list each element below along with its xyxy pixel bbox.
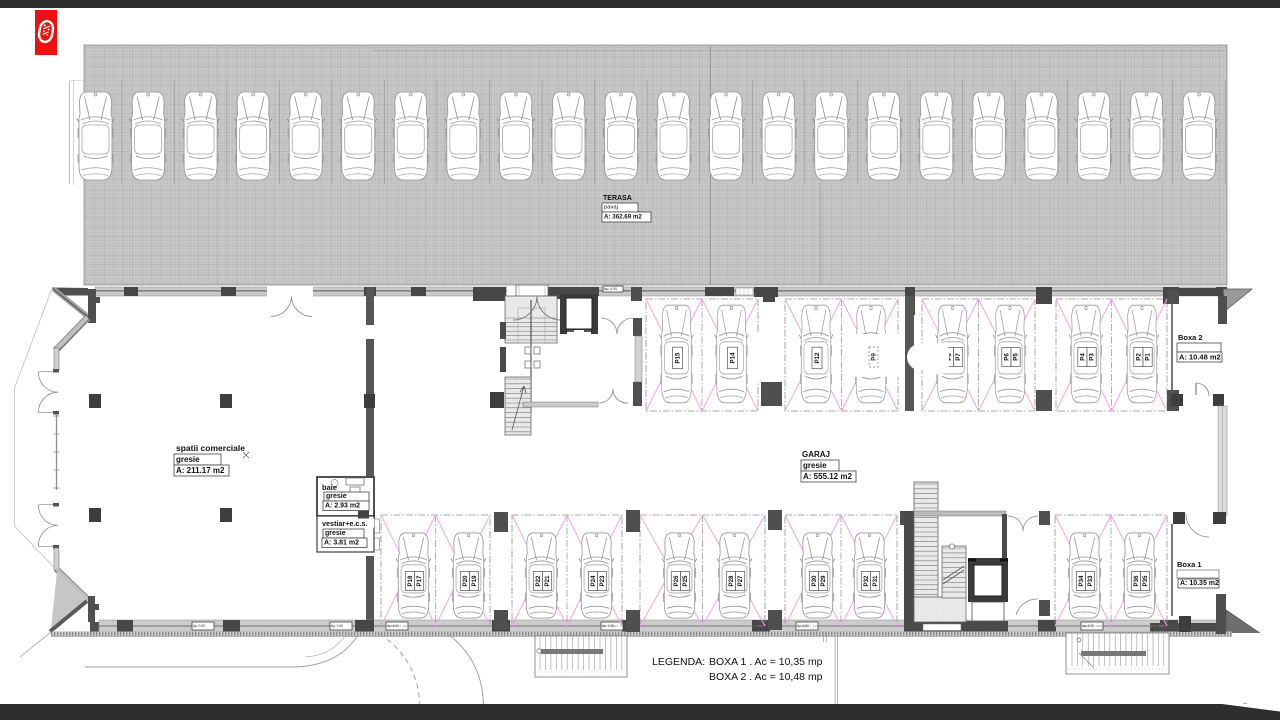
svg-text:P4: P4 xyxy=(1079,353,1086,361)
svg-text:P19: P19 xyxy=(471,575,478,587)
svg-text:P17: P17 xyxy=(416,575,423,587)
svg-text:P24: P24 xyxy=(590,575,597,587)
svg-text:vestiar+e.c.s.: vestiar+e.c.s. xyxy=(322,519,367,528)
svg-text:P33: P33 xyxy=(1087,575,1094,587)
svg-text:Ap: 0.00: Ap: 0.00 xyxy=(193,624,205,628)
svg-text:P14: P14 xyxy=(730,352,737,364)
svg-text:P34: P34 xyxy=(1078,575,1085,587)
svg-text:gresie: gresie xyxy=(325,530,346,537)
svg-text:P21: P21 xyxy=(544,575,551,587)
svg-text:P25: P25 xyxy=(682,575,689,587)
svg-text:Ap: 0.00: Ap: 0.00 xyxy=(604,287,617,291)
svg-text:P2: P2 xyxy=(1135,353,1142,361)
svg-text:P32: P32 xyxy=(863,575,870,587)
svg-text:GARAJ: GARAJ xyxy=(802,450,830,459)
svg-text:BOXA 1 . Ac = 10,35 mp: BOXA 1 . Ac = 10,35 mp xyxy=(709,656,823,668)
svg-text:P27: P27 xyxy=(737,575,744,587)
svg-text:Ap: 0.00: Ap: 0.00 xyxy=(331,624,343,628)
svg-text:P12: P12 xyxy=(814,352,821,364)
svg-text:P28: P28 xyxy=(728,575,735,587)
svg-text:P22: P22 xyxy=(535,575,542,587)
svg-text:Boxa 1: Boxa 1 xyxy=(1177,560,1202,569)
svg-text:P3: P3 xyxy=(1089,353,1096,361)
svg-text:P20: P20 xyxy=(462,575,469,587)
svg-text:P23: P23 xyxy=(599,575,606,587)
svg-text:pavaj: pavaj xyxy=(604,205,618,211)
svg-text:A: 211.17 m2: A: 211.17 m2 xyxy=(176,466,225,475)
svg-text:BOXA 2 . Ac = 10,48 mp: BOXA 2 . Ac = 10,48 mp xyxy=(709,671,823,683)
svg-text:spatii comerciale: spatii comerciale xyxy=(176,443,245,453)
svg-text:A: 10.35 m2: A: 10.35 m2 xyxy=(1180,580,1219,587)
svg-text:P1: P1 xyxy=(1145,353,1152,361)
svg-text:P35: P35 xyxy=(1142,575,1149,587)
svg-text:A: 555.12 m2: A: 555.12 m2 xyxy=(803,472,852,481)
svg-text:P15: P15 xyxy=(675,352,682,364)
svg-text:A: 2.93 m2: A: 2.93 m2 xyxy=(325,502,360,509)
svg-text:P18: P18 xyxy=(407,575,414,587)
svg-text:gresie: gresie xyxy=(176,455,200,464)
svg-text:P7: P7 xyxy=(955,353,962,361)
svg-text:gresie: gresie xyxy=(326,493,347,500)
svg-text:P29: P29 xyxy=(820,575,827,587)
svg-text:gresie: gresie xyxy=(803,461,827,470)
svg-text:LEGENDA:: LEGENDA: xyxy=(652,656,705,668)
svg-text:P9: P9 xyxy=(871,353,878,361)
svg-text:P30: P30 xyxy=(811,575,818,587)
svg-text:P5: P5 xyxy=(1013,353,1020,361)
svg-text:TERASA: TERASA xyxy=(603,195,632,202)
svg-text:P36: P36 xyxy=(1133,575,1140,587)
svg-text:P26: P26 xyxy=(673,575,680,587)
svg-text:A: 3.81 m2: A: 3.81 m2 xyxy=(324,539,359,546)
svg-text:A: 362.69 m2: A: 362.69 m2 xyxy=(604,214,642,221)
svg-text:A: 10.48 m2: A: 10.48 m2 xyxy=(1179,353,1221,362)
svg-text:P6: P6 xyxy=(1003,353,1010,361)
svg-text:baie: baie xyxy=(322,483,337,492)
svg-text:P31: P31 xyxy=(872,575,879,587)
svg-text:Boxa 2: Boxa 2 xyxy=(1178,333,1203,342)
